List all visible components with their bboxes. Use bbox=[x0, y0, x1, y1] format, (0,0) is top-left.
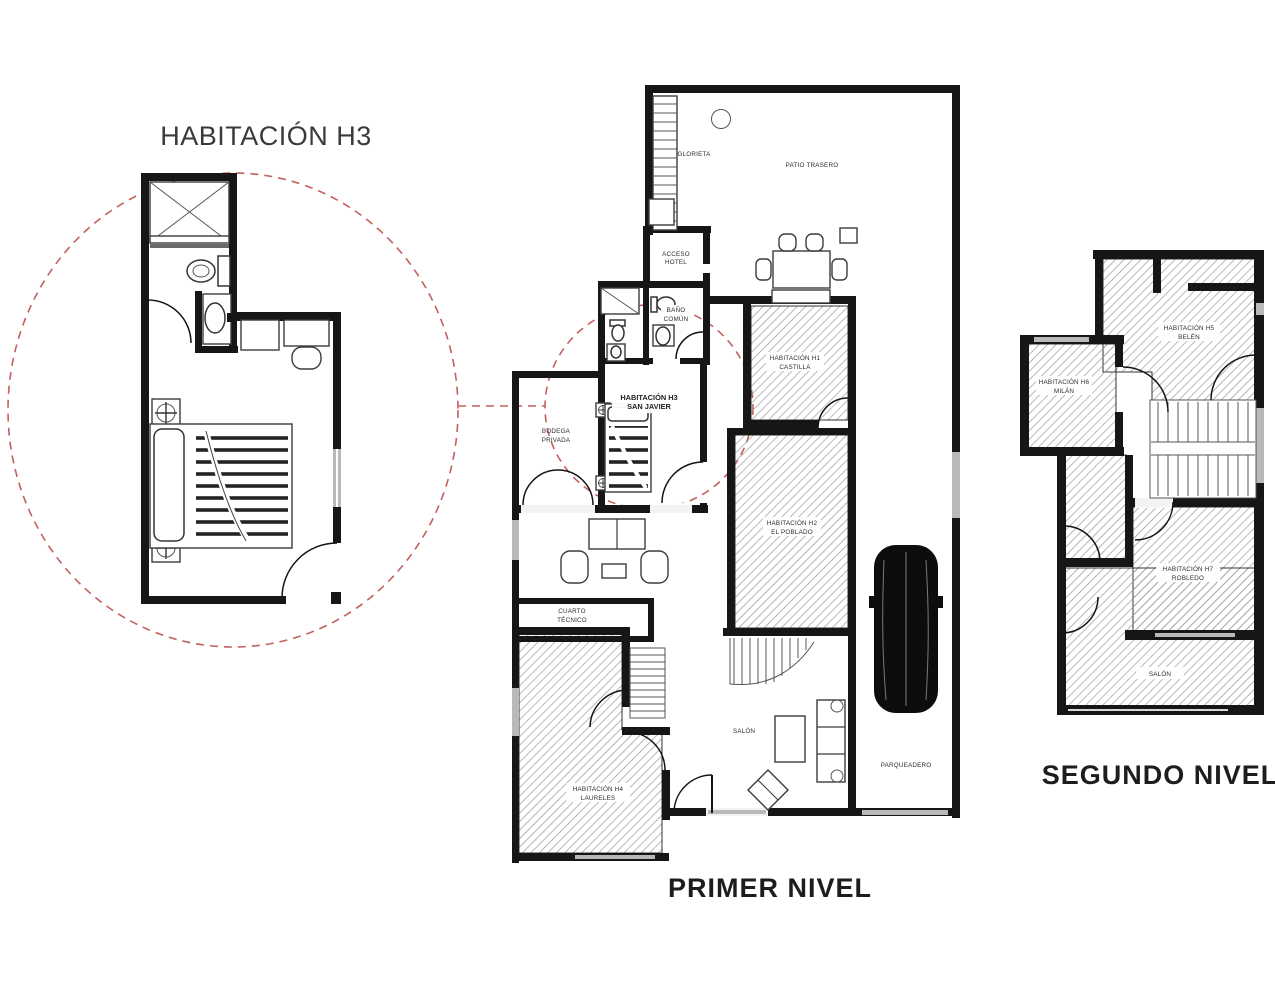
label-belen-l1: HABITACIÓN H5 bbox=[1164, 323, 1215, 332]
detail-closet-desk bbox=[241, 320, 329, 369]
label-castilla-l2: CASTILLA bbox=[779, 364, 811, 371]
label-bodega-l1: BODEGA bbox=[542, 428, 571, 435]
primer-straight-stairs bbox=[630, 648, 665, 718]
floorplan-canvas: HABITACIÓN H3 PRIMER NIVEL SEGUNDO NIVEL bbox=[0, 0, 1275, 985]
h3-plan-bed bbox=[605, 404, 651, 492]
label-belen-l2: BELÉN bbox=[1178, 332, 1200, 341]
detail-window-line bbox=[336, 449, 338, 507]
label-bano-l2: COMÚN bbox=[664, 314, 689, 323]
detail-toilet bbox=[187, 256, 230, 286]
patio-closet bbox=[649, 199, 674, 225]
label-bodega-l2: PRIVADA bbox=[542, 437, 571, 444]
label-bano-l1: BAÑO bbox=[667, 305, 686, 314]
label-robledo-l1: HABITACIÓN H7 bbox=[1163, 564, 1214, 573]
detail-sink bbox=[203, 294, 233, 344]
bodega-door-arc-left bbox=[523, 470, 558, 505]
label-cuarto-l1: CUARTO bbox=[558, 608, 586, 615]
detail-entry-door-arc bbox=[282, 543, 337, 598]
label-patio: PATIO TRASERO bbox=[786, 162, 839, 169]
label-glorieta: GLORIETA bbox=[678, 151, 712, 158]
living-set bbox=[561, 519, 668, 583]
dining-set bbox=[756, 228, 857, 303]
detail-vent-symbol-top bbox=[152, 399, 180, 427]
label-milan-l1: HABITACIÓN H6 bbox=[1039, 377, 1090, 386]
label-castilla-l1: HABITACIÓN H1 bbox=[770, 353, 821, 362]
label-h3-l2: SAN JAVIER bbox=[627, 402, 671, 411]
label-laureles-l2: LAURELES bbox=[581, 795, 616, 802]
car bbox=[869, 545, 943, 713]
primer-nivel-title: PRIMER NIVEL bbox=[668, 873, 872, 903]
primer-h3-room bbox=[596, 403, 703, 503]
label-salon-segundo: SALÓN bbox=[1149, 669, 1172, 678]
label-milan-l2: MILÁN bbox=[1054, 386, 1074, 395]
primer-nivel-plan: GLORIETA PATIO TRASERO ACCESO HOTEL BAÑO… bbox=[512, 85, 960, 863]
segundo-nivel-plan: HABITACIÓN H5 BELÉN HABITACIÓN H6 MILÁN … bbox=[1020, 250, 1264, 715]
label-cuarto-l2: TÉCNICO bbox=[557, 615, 587, 624]
room-laureles bbox=[519, 634, 662, 853]
detail-title: HABITACIÓN H3 bbox=[160, 120, 372, 151]
label-acceso-l2: HOTEL bbox=[665, 259, 687, 266]
label-poblado-l1: HABITACIÓN H2 bbox=[767, 518, 818, 527]
detail-bed bbox=[150, 424, 292, 548]
primer-bath-fixtures bbox=[601, 288, 703, 361]
label-acceso-l1: ACCESO bbox=[662, 251, 690, 258]
segundo-nivel-title: SEGUNDO NIVEL bbox=[1042, 760, 1275, 790]
bodega-door-arc-right bbox=[558, 470, 593, 505]
segundo-stairs bbox=[1150, 400, 1256, 498]
salon-furniture bbox=[748, 700, 845, 810]
detail-bath-door-arc bbox=[148, 300, 191, 343]
label-h3-l1: HABITACIÓN H3 bbox=[620, 393, 677, 402]
label-robledo-l2: ROBLEDO bbox=[1172, 575, 1204, 582]
detail-room-h3 bbox=[141, 173, 341, 604]
patio-tree bbox=[712, 110, 731, 129]
detail-shower bbox=[150, 182, 229, 248]
room-milan bbox=[1028, 344, 1116, 448]
label-parqueadero: PARQUEADERO bbox=[881, 762, 932, 769]
floorplan-page: HABITACIÓN H3 PRIMER NIVEL SEGUNDO NIVEL bbox=[0, 0, 1275, 985]
label-laureles-l1: HABITACIÓN H4 bbox=[573, 784, 624, 793]
h3-plan-door-arc bbox=[662, 462, 703, 503]
label-poblado-l2: EL POBLADO bbox=[771, 529, 813, 536]
primer-curved-stairs bbox=[730, 638, 814, 685]
label-salon: SALÓN bbox=[733, 726, 756, 735]
